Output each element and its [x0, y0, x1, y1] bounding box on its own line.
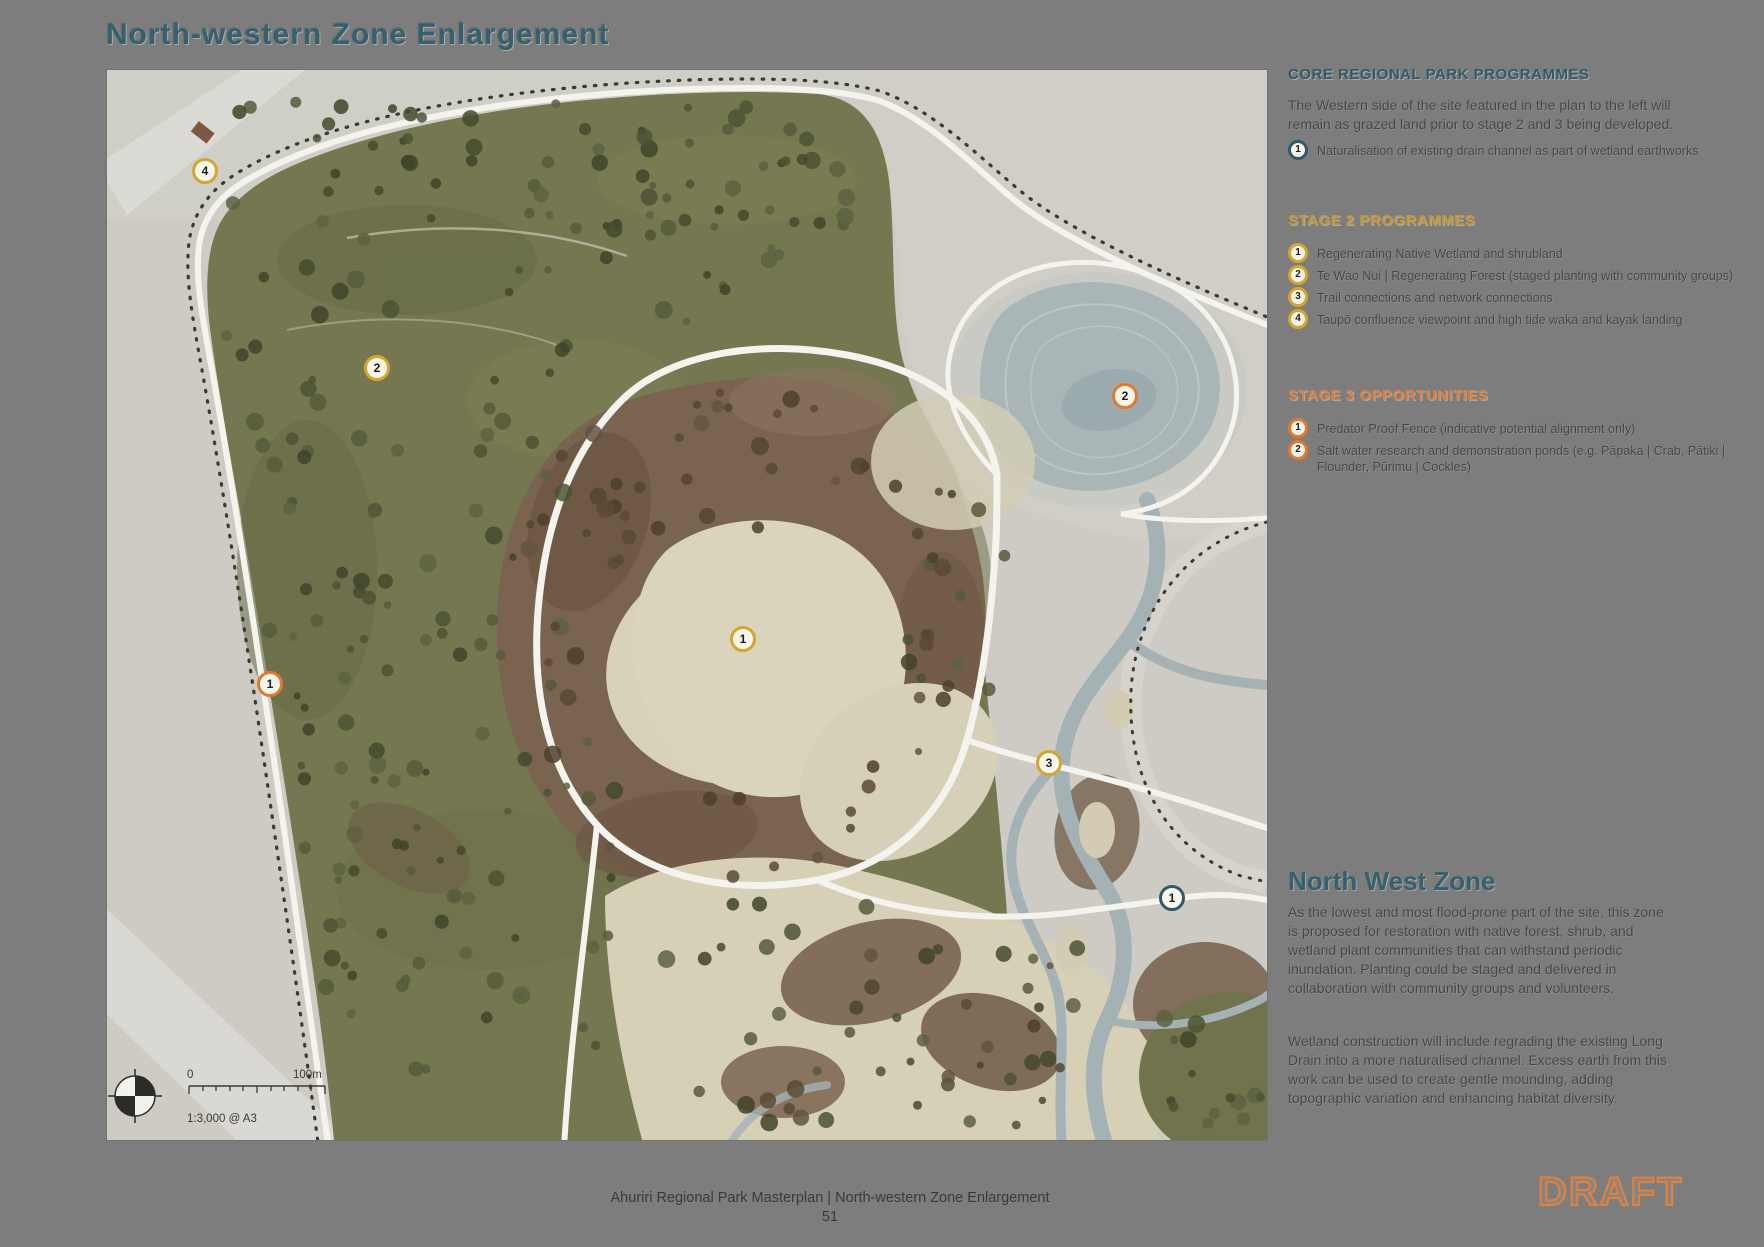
legend-label: Predator Proof Fence (indicative potenti…: [1317, 418, 1635, 437]
legend-item-stage2-4: 4 Taupō confluence viewpoint and high ti…: [1288, 309, 1758, 329]
svg-text:2: 2: [1122, 389, 1129, 403]
legend-label: Naturalisation of existing drain channel…: [1317, 140, 1698, 159]
page-number: 51: [400, 1208, 1260, 1227]
scale-zero-label: 0: [187, 1069, 193, 1081]
scale-end-label: 100m: [293, 1069, 322, 1081]
meadow-north-east: [871, 394, 1035, 530]
svg-text:2: 2: [374, 361, 381, 375]
stage3-marker-icon: 2: [1288, 440, 1308, 460]
legend-item-stage3-2: 2 Salt water research and demonstration …: [1288, 440, 1740, 475]
map-marker-stage3-1: 1: [259, 673, 282, 696]
legend-item-stage2-3: 3 Trail connections and network connecti…: [1288, 287, 1758, 307]
stage2-marker-icon: 2: [1288, 265, 1308, 285]
map-marker-stage2-2: 2: [366, 357, 389, 380]
svg-text:4: 4: [202, 164, 209, 178]
draft-watermark: DRAFT: [1538, 1170, 1684, 1215]
svg-text:3: 3: [1046, 756, 1053, 770]
north-west-zone-para1: As the lowest and most flood-prone part …: [1288, 903, 1676, 998]
svg-text:1: 1: [1169, 891, 1176, 905]
stage3-marker-icon: 1: [1288, 418, 1308, 438]
map-marker-stage2-3: 3: [1038, 752, 1061, 775]
north-west-zone-heading: North West Zone: [1288, 866, 1496, 897]
svg-text:1: 1: [267, 677, 274, 691]
page-footer: Ahuriri Regional Park Masterplan | North…: [400, 1189, 1260, 1227]
legend-item-stage2-2: 2 Te Wao Nui | Regenerating Forest (stag…: [1288, 265, 1758, 285]
footer-title: Ahuriri Regional Park Masterplan | North…: [400, 1189, 1260, 1208]
stage2-marker-icon: 4: [1288, 309, 1308, 329]
stage2-programmes-heading: STAGE 2 PROGRAMMES: [1288, 212, 1475, 229]
legend-item-stage3-1: 1 Predator Proof Fence (indicative poten…: [1288, 418, 1758, 438]
legend-label: Regenerating Native Wetland and shrublan…: [1317, 243, 1563, 262]
north-west-zone-para2: Wetland construction will include regrad…: [1288, 1032, 1676, 1108]
map-marker-stage2-4: 4: [194, 160, 217, 183]
stage2-marker-icon: 3: [1288, 287, 1308, 307]
stage2-marker-icon: 1: [1288, 243, 1308, 263]
masterplan-map: 4221131 0 100m 1:3,000 @ A3: [107, 70, 1267, 1140]
legend-item-core-1: 1 Naturalisation of existing drain chann…: [1288, 140, 1758, 160]
core-programmes-heading: CORE REGIONAL PARK PROGRAMMES: [1288, 66, 1589, 83]
masterplan-map-svg: 4221131 0 100m 1:3,000 @ A3: [107, 70, 1267, 1140]
page-title: North-western Zone Enlargement: [106, 18, 609, 52]
legend-label: Trail connections and network connection…: [1317, 287, 1553, 306]
legend-label: Te Wao Nui | Regenerating Forest (staged…: [1317, 265, 1733, 284]
svg-text:1: 1: [740, 632, 747, 646]
scale-ratio-label: 1:3,000 @ A3: [187, 1113, 257, 1125]
stage3-opportunities-heading: STAGE 3 OPPORTUNITIES: [1288, 387, 1488, 404]
legend-item-stage2-1: 1 Regenerating Native Wetland and shrubl…: [1288, 243, 1758, 263]
legend-label: Taupō confluence viewpoint and high tide…: [1317, 309, 1683, 328]
core-marker-icon: 1: [1288, 140, 1308, 160]
map-marker-stage3-2: 2: [1114, 385, 1137, 408]
map-marker-core-1: 1: [1161, 887, 1184, 910]
legend-label: Salt water research and demonstration po…: [1317, 440, 1740, 475]
core-programmes-intro: The Western side of the site featured in…: [1288, 96, 1676, 134]
map-marker-stage2-1: 1: [732, 628, 755, 651]
